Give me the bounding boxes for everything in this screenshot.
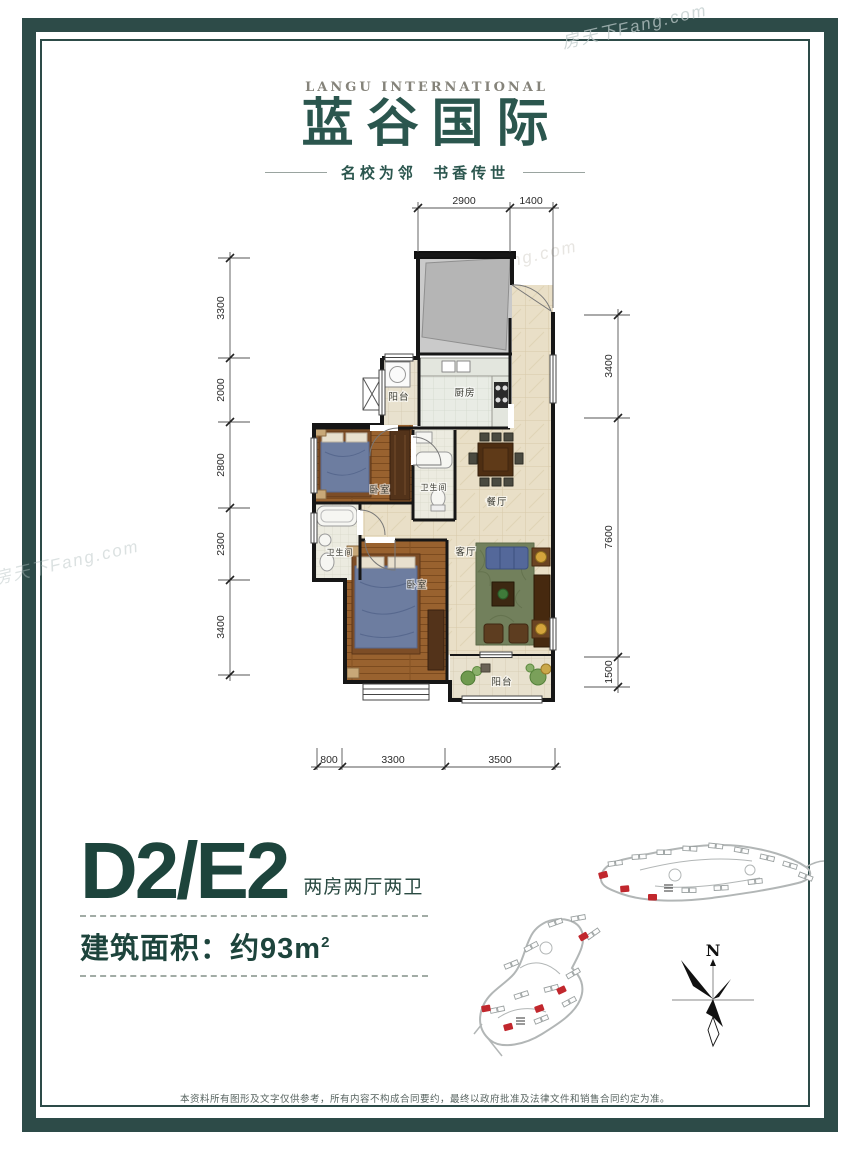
unit-area-label: 建筑面积： (80, 933, 230, 965)
room-label-bath-2: 卫生间 (327, 547, 354, 557)
dim-right-1: 3400 (603, 354, 615, 378)
site-map: N (450, 828, 825, 1063)
unit-area-value: 约93m (230, 933, 321, 965)
divider-dashed (80, 975, 428, 977)
room-label-balcony-bottom: 阳台 (491, 676, 512, 688)
room-label-balcony-top: 阳台 (388, 391, 409, 403)
room-label-dining: 餐厅 (486, 496, 507, 508)
unit-layout-desc: 两房两厅两卫 (303, 872, 423, 899)
room-label-bath-1: 卫生间 (421, 482, 448, 492)
room-label-kitchen: 厨房 (454, 387, 475, 399)
disclaimer-text: 本资料所有图形及文字仅供参考，所有内容不构成合同要约，最终以政府批准及法律文件和… (40, 1091, 810, 1105)
dim-bottom-2: 3300 (381, 754, 405, 766)
unit-info: D2/E2 两房两厅两卫 建筑面积：约93m2 (80, 834, 428, 977)
dim-left-4: 2300 (215, 532, 227, 556)
room-label-bedroom-2: 卧室 (406, 579, 427, 591)
brand-tagline: 名校为邻 书香传世 (0, 162, 850, 183)
dim-left-3: 2800 (215, 453, 227, 477)
site-cluster-north (601, 845, 824, 901)
dim-bottom-3: 3500 (488, 754, 512, 766)
dim-top-2: 1400 (519, 195, 543, 207)
room-label-living: 客厅 (455, 546, 476, 558)
dim-left-1: 3300 (215, 296, 227, 320)
north-compass: N (672, 941, 754, 1046)
poster-page: 房天下Fang.com 房天下Fang.com 房天下Fang.com LANG… (0, 0, 850, 1154)
north-label: N (706, 941, 721, 960)
dim-right-3: 1500 (603, 660, 615, 684)
unit-title: D2/E2 (80, 834, 287, 908)
floor-plan: 阳台 厨房 卧室 卫生间 餐厅 卫生间 客厅 卧室 阳台 2900 (180, 190, 640, 770)
dim-left-2: 2000 (215, 378, 227, 402)
tagline-rule-right (523, 172, 585, 173)
unit-area: 建筑面积：约93m2 (80, 925, 428, 967)
dim-right-2: 7600 (603, 525, 615, 549)
site-buildings-north (598, 843, 813, 901)
site-cluster-south (474, 919, 583, 1056)
dim-left-5: 3400 (215, 615, 227, 639)
dim-top-1: 2900 (452, 195, 476, 207)
tagline-text: 名校为邻 书香传世 (341, 162, 509, 183)
dim-bottom-1: 800 (320, 754, 338, 766)
tagline-rule-left (265, 172, 327, 173)
brand-name-cn: 蓝谷国际 (0, 98, 850, 150)
unit-area-superscript: 2 (321, 934, 330, 951)
brand-name-en: LANGU INTERNATIONAL (305, 80, 548, 95)
room-label-bedroom-1: 卧室 (369, 484, 390, 496)
entry-floor (512, 285, 553, 428)
